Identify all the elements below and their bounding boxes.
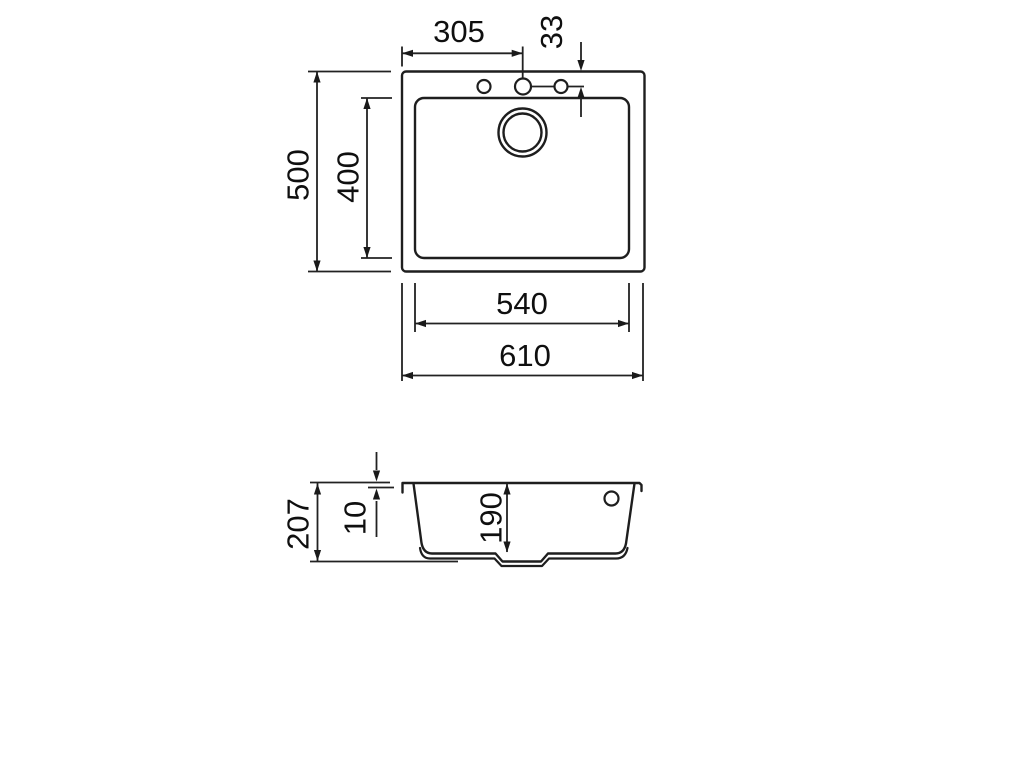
arrowhead	[363, 247, 370, 258]
bowl-outer-shell-section	[420, 548, 628, 566]
drain-outer-circle	[499, 109, 547, 157]
arrowhead	[512, 50, 523, 57]
arrowhead	[415, 320, 426, 327]
dim-label-610: 610	[499, 338, 551, 373]
dim-label-10: 10	[338, 501, 373, 535]
arrowhead	[402, 50, 413, 57]
arrowhead	[313, 261, 320, 272]
bowl-inner-profile-section	[414, 484, 635, 562]
sink-technical-drawing: 305 33 500	[0, 0, 1024, 768]
dim-label-540: 540	[496, 286, 548, 321]
tap-hole-left	[478, 80, 491, 93]
dim-label-305: 305	[433, 14, 485, 49]
arrowhead	[632, 372, 643, 379]
tap-hole-right	[555, 80, 568, 93]
dim-label-190: 190	[474, 492, 509, 544]
dimension-305: 305	[402, 14, 523, 79]
dim-label-207: 207	[281, 498, 316, 550]
dim-label-500: 500	[281, 149, 316, 201]
arrowhead	[363, 98, 370, 109]
technical-drawing-canvas: 305 33 500	[0, 0, 1024, 768]
dim-label-33: 33	[534, 15, 569, 49]
dimension-400: 400	[331, 98, 393, 258]
arrowhead	[577, 87, 584, 98]
dimension-10: 10	[338, 452, 395, 537]
sink-outer-edge-plan	[402, 72, 645, 272]
arrowhead	[373, 489, 380, 500]
arrowhead	[313, 72, 320, 83]
rim-profile-section	[403, 483, 642, 493]
arrowhead	[373, 471, 380, 482]
drain-inner-circle	[504, 114, 542, 152]
dimension-33: 33	[534, 15, 585, 117]
arrowhead	[618, 320, 629, 327]
dimension-190: 190	[474, 484, 511, 553]
arrowhead	[314, 484, 321, 495]
tap-hole-center	[515, 79, 531, 95]
arrowhead	[577, 60, 584, 71]
dim-label-400: 400	[331, 151, 366, 203]
section-view: 207 10 190	[281, 452, 642, 566]
arrowhead	[402, 372, 413, 379]
dimension-540: 540	[415, 283, 629, 332]
plan-view: 305 33 500	[281, 14, 645, 381]
overflow-hole	[605, 492, 619, 506]
arrowhead	[314, 550, 321, 561]
bowl-opening-plan	[415, 98, 629, 258]
